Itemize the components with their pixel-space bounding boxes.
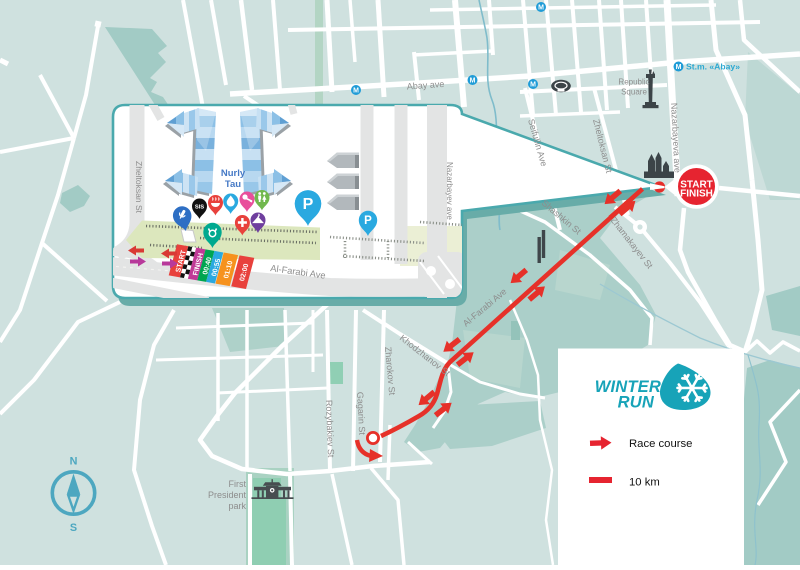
svg-text:SIS: SIS: [195, 205, 204, 211]
svg-text:10 km: 10 km: [629, 477, 660, 489]
svg-text:N: N: [70, 456, 78, 468]
svg-text:S: S: [70, 522, 77, 534]
svg-text:P: P: [364, 215, 372, 227]
svg-text:P: P: [303, 196, 314, 213]
svg-text:M: M: [353, 88, 359, 95]
svg-text:RUN: RUN: [618, 394, 655, 412]
svg-text:Race course: Race course: [629, 438, 692, 450]
svg-text:M: M: [676, 64, 682, 71]
svg-text:park: park: [228, 501, 246, 511]
svg-text:Nazarbayev ave: Nazarbayev ave: [445, 162, 454, 220]
svg-text:Zheltoksan St: Zheltoksan St: [134, 161, 144, 214]
svg-text:Square: Square: [621, 88, 647, 97]
svg-text:M: M: [470, 78, 476, 85]
svg-text:Republic: Republic: [618, 78, 649, 87]
svg-text:President: President: [208, 490, 247, 500]
svg-text:M: M: [530, 82, 536, 89]
svg-text:Tau: Tau: [225, 179, 241, 190]
svg-text:Nurly: Nurly: [221, 168, 246, 179]
svg-text:M: M: [538, 5, 544, 12]
svg-text:FINISH: FINISH: [680, 189, 713, 200]
svg-text:Rozybakiev St: Rozybakiev St: [324, 400, 336, 458]
svg-text:First: First: [229, 479, 247, 489]
svg-text:St.m. «Abay»: St.m. «Abay»: [686, 62, 740, 72]
